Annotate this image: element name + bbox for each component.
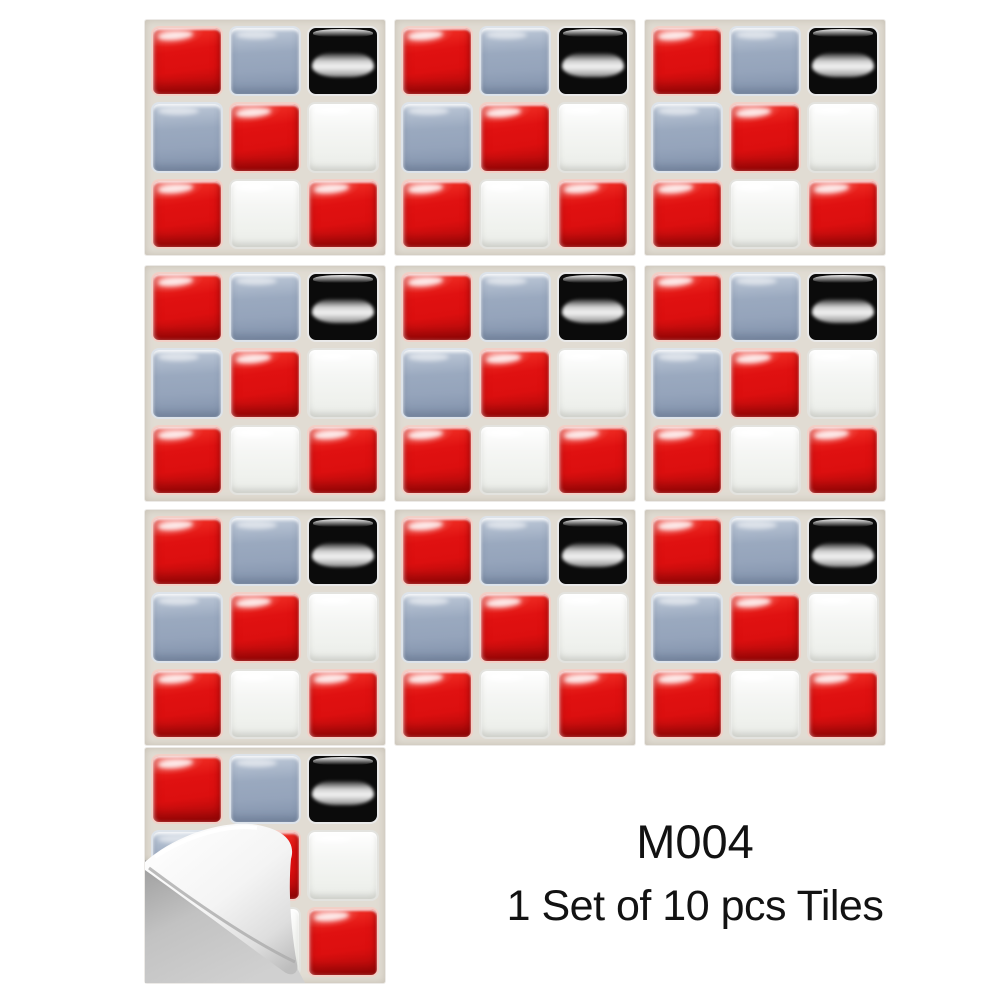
mosaic-tile-red [151,669,223,739]
mosaic-tile-red [151,425,223,495]
mosaic-tile-white [557,348,629,418]
tile-sheet [145,748,385,983]
mosaic-tile-white [807,102,879,172]
mosaic-tile-red [729,348,801,418]
mosaic-tile-white [307,348,379,418]
mosaic-tile-white [729,425,801,495]
mosaic-tile-blue [651,348,723,418]
peel-corner [145,748,385,983]
mosaic-tile-black [807,516,879,586]
tile-sheet [145,266,385,501]
mosaic-tile-red [479,592,551,662]
mosaic-tile-red [479,348,551,418]
mosaic-tile-white [729,179,801,249]
product-caption: M004 1 Set of 10 pcs Tiles [445,814,945,931]
mosaic-tile-black [807,272,879,342]
mosaic-tile-red [229,348,301,418]
mosaic-tile-red [307,669,379,739]
mosaic-tile-blue [651,102,723,172]
mosaic-tile-white [307,592,379,662]
mosaic-tile-white [479,179,551,249]
mosaic-tile-black [307,516,379,586]
mosaic-tile-red [401,516,473,586]
mosaic-tile-red [557,179,629,249]
mosaic-tile-red [151,516,223,586]
mosaic-tile-white [807,592,879,662]
mosaic-tile-blue [151,102,223,172]
mosaic-tile-red [729,102,801,172]
mosaic-tile-black [557,26,629,96]
mosaic-tile-white [307,102,379,172]
mosaic-tile-blue [401,592,473,662]
mosaic-tile-blue [479,26,551,96]
mosaic-tile-blue [401,348,473,418]
mosaic-tile-red [651,425,723,495]
mosaic-tile-red [651,272,723,342]
mosaic-tile-white [729,669,801,739]
mosaic-tile-blue [729,272,801,342]
mosaic-tile-red [401,179,473,249]
mosaic-tile-red [807,179,879,249]
product-code: M004 [445,814,945,869]
mosaic-tile-red [401,272,473,342]
mosaic-tile-white [479,669,551,739]
mosaic-tile-white [479,425,551,495]
mosaic-tile-black [307,26,379,96]
mosaic-tile-white [229,669,301,739]
mosaic-tile-blue [151,592,223,662]
mosaic-tile-red [307,425,379,495]
mosaic-tile-red [807,425,879,495]
tile-sheet [645,266,885,501]
mosaic-tile-red [307,179,379,249]
product-image-canvas: M004 1 Set of 10 pcs Tiles [0,0,1000,1000]
mosaic-tile-red [401,669,473,739]
mosaic-tile-blue [729,26,801,96]
tile-sheet [145,20,385,255]
mosaic-tile-blue [229,516,301,586]
tile-sheet [395,266,635,501]
mosaic-tile-red [651,516,723,586]
mosaic-tile-red [651,179,723,249]
mosaic-tile-blue [479,272,551,342]
mosaic-tile-black [557,516,629,586]
mosaic-tile-white [807,348,879,418]
mosaic-tile-white [557,592,629,662]
mosaic-tile-blue [479,516,551,586]
mosaic-tile-red [807,669,879,739]
mosaic-tile-white [229,179,301,249]
mosaic-tile-black [807,26,879,96]
tile-sheet [645,20,885,255]
tile-sheet [395,20,635,255]
mosaic-tile-blue [651,592,723,662]
mosaic-tile-red [151,179,223,249]
mosaic-tile-black [307,272,379,342]
tile-sheet [145,510,385,745]
mosaic-tile-blue [229,272,301,342]
mosaic-tile-red [401,425,473,495]
product-set-label: 1 Set of 10 pcs Tiles [445,882,945,931]
tile-sheet [395,510,635,745]
mosaic-tile-black [557,272,629,342]
mosaic-tile-red [651,26,723,96]
mosaic-tile-white [557,102,629,172]
mosaic-tile-red [151,272,223,342]
mosaic-tile-red [729,592,801,662]
mosaic-tile-red [229,592,301,662]
mosaic-tile-red [651,669,723,739]
mosaic-tile-red [479,102,551,172]
mosaic-tile-red [151,26,223,96]
mosaic-tile-white [229,425,301,495]
mosaic-tile-red [401,26,473,96]
tile-sheet [645,510,885,745]
mosaic-tile-blue [151,348,223,418]
mosaic-tile-red [557,669,629,739]
mosaic-tile-blue [729,516,801,586]
mosaic-tile-red [557,425,629,495]
mosaic-tile-blue [401,102,473,172]
mosaic-tile-red [229,102,301,172]
mosaic-tile-blue [229,26,301,96]
